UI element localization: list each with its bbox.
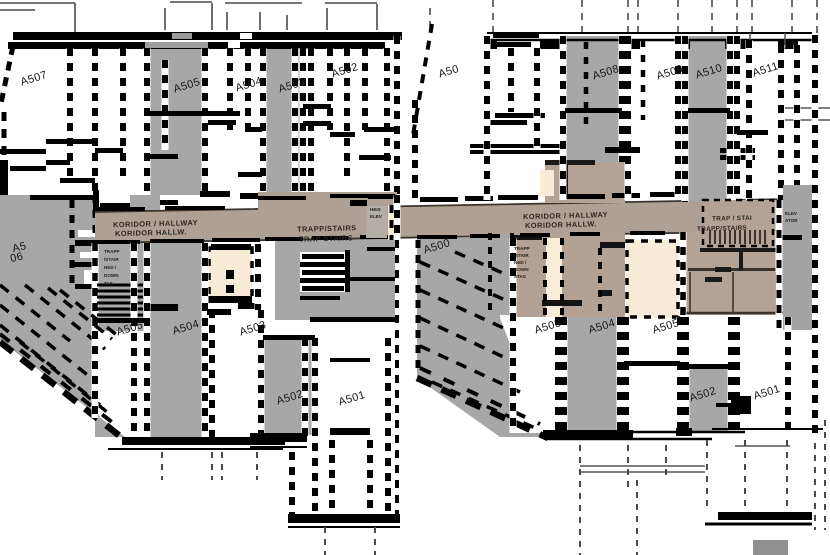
svg-text:ELEV: ELEV xyxy=(785,211,798,216)
svg-text:ELEV: ELEV xyxy=(370,214,383,219)
svg-text:TRAPP: TRAPP xyxy=(514,246,530,251)
svg-text:TRAPP: TRAPP xyxy=(104,249,120,254)
svg-text:KORIDOR HALLW.: KORIDOR HALLW. xyxy=(525,219,597,230)
svg-text:DOWN: DOWN xyxy=(104,273,119,278)
svg-text:TRAPP/STAIRS: TRAPP/STAIRS xyxy=(697,225,748,233)
svg-text:STAS: STAS xyxy=(514,274,526,279)
svg-text:TRAP STAIRS: TRAP STAIRS xyxy=(299,233,353,243)
svg-text:NED /: NED / xyxy=(104,265,117,270)
svg-text:TRAP / STAI: TRAP / STAI xyxy=(712,215,752,223)
svg-text:NED /: NED / xyxy=(514,260,527,265)
svg-text:ATOR: ATOR xyxy=(785,218,798,223)
svg-text:/STAIR: /STAIR xyxy=(104,257,119,262)
svg-text:KORIDOR HALLW.: KORIDOR HALLW. xyxy=(115,227,187,238)
svg-text:DOWN: DOWN xyxy=(514,267,529,272)
svg-text:/STAIR: /STAIR xyxy=(514,253,529,258)
svg-text:TRAPP/STAIRS: TRAPP/STAIRS xyxy=(297,223,357,234)
svg-text:HEIS: HEIS xyxy=(370,207,381,212)
svg-text:TAS: TAS xyxy=(104,281,113,286)
